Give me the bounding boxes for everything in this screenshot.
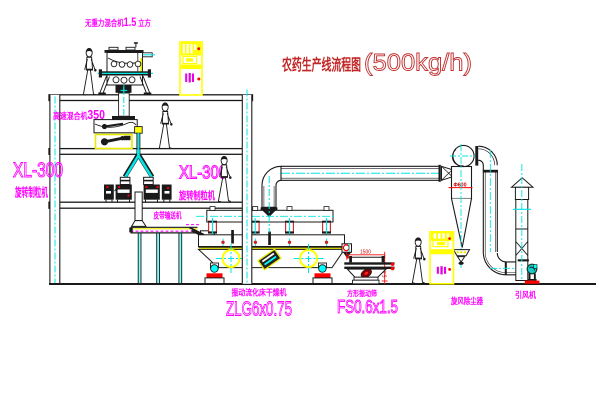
svg-text:Φ600: Φ600 — [454, 182, 467, 188]
svg-text:振动流化床干燥机: 振动流化床干燥机 — [232, 288, 287, 298]
svg-text:ZLG6x0.75: ZLG6x0.75 — [226, 299, 292, 321]
svg-text:农药生产线流程图: 农药生产线流程图 — [281, 55, 361, 74]
svg-text:旋转制粒机: 旋转制粒机 — [178, 189, 215, 202]
svg-text:1500: 1500 — [360, 249, 371, 255]
svg-text:皮带输送机: 皮带输送机 — [153, 211, 182, 221]
svg-text:FS0.6x1.5: FS0.6x1.5 — [337, 297, 398, 317]
svg-text:无重力混合机1.5 立方: 无重力混合机1.5 立方 — [84, 15, 151, 29]
svg-text:引风机: 引风机 — [515, 290, 536, 300]
svg-text:XL-300: XL-300 — [13, 159, 63, 182]
svg-text:旋风除尘器: 旋风除尘器 — [450, 296, 483, 306]
svg-text:(500kg/h): (500kg/h) — [364, 50, 472, 77]
svg-text:XL-300: XL-300 — [179, 161, 227, 182]
svg-text:旋转制粒机: 旋转制粒机 — [14, 184, 48, 199]
